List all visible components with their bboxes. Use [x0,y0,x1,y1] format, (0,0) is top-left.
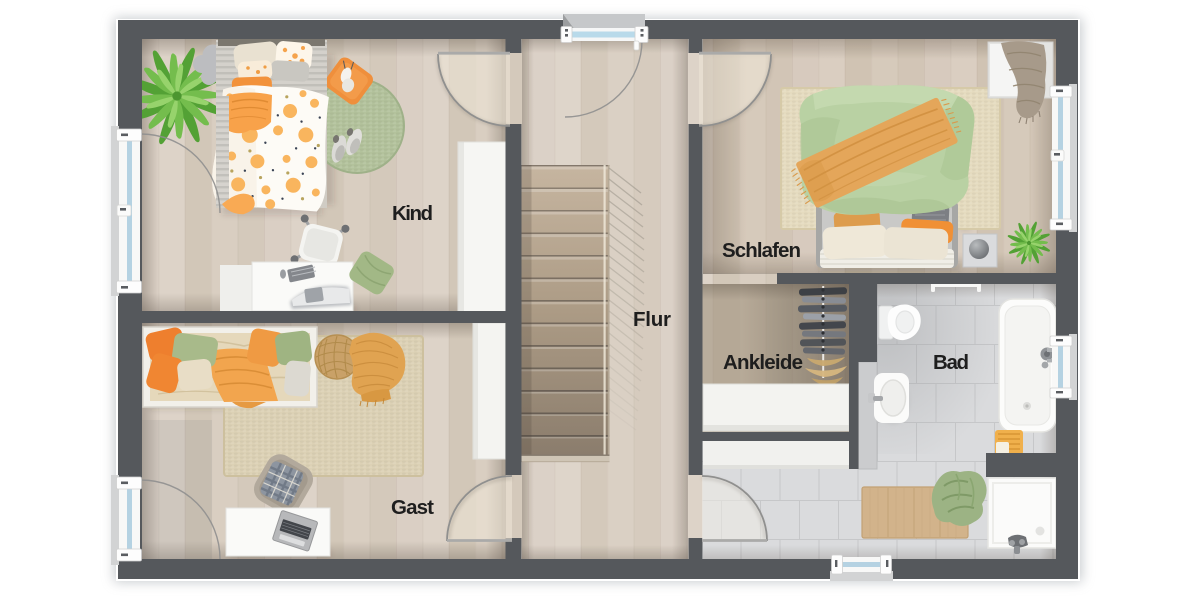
svg-text:Ankleide: Ankleide [723,351,803,374]
svg-text:Gast: Gast [391,496,434,519]
svg-text:Schlafen: Schlafen [722,239,801,262]
svg-text:Bad: Bad [933,351,969,374]
svg-text:Kind: Kind [392,202,433,225]
svg-text:Flur: Flur [633,308,671,331]
